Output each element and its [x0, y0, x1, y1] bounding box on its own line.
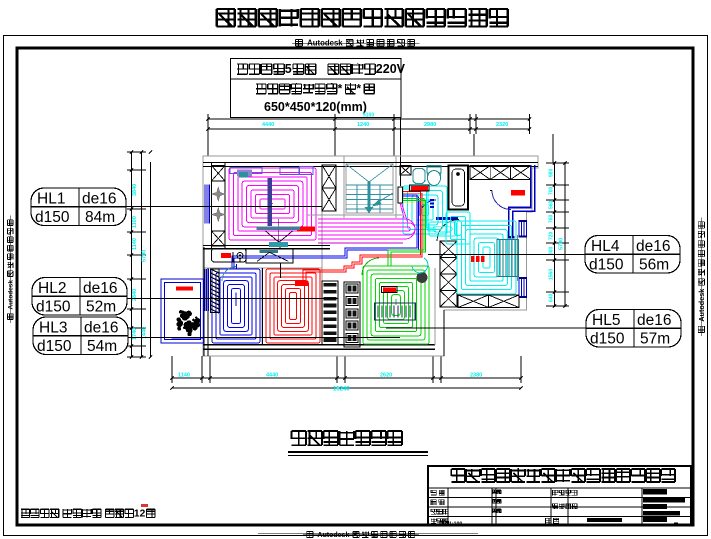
svg-text:2380: 2380 — [470, 373, 482, 379]
svg-text:de16: de16 — [637, 312, 671, 329]
svg-text:560: 560 — [549, 200, 555, 209]
svg-text:1560: 1560 — [549, 269, 555, 280]
svg-text:1240: 1240 — [357, 122, 369, 128]
svg-text:56m: 56m — [639, 257, 669, 274]
svg-text:5100: 5100 — [363, 113, 374, 119]
svg-text:980: 980 — [549, 168, 555, 177]
svg-text:700: 700 — [549, 186, 555, 195]
svg-text:HL5: HL5 — [592, 312, 620, 329]
svg-text:2980: 2980 — [424, 122, 436, 128]
svg-text:54m: 54m — [87, 338, 117, 355]
svg-text:5700: 5700 — [559, 238, 565, 250]
svg-text:d150: d150 — [35, 209, 70, 226]
svg-text:1140: 1140 — [132, 238, 138, 250]
svg-text:d150: d150 — [589, 257, 624, 274]
svg-text:4440: 4440 — [262, 122, 274, 128]
svg-text:d150: d150 — [36, 299, 71, 316]
svg-text:1740: 1740 — [132, 328, 138, 340]
svg-text:5700: 5700 — [142, 250, 148, 262]
svg-text:52m: 52m — [86, 299, 116, 316]
svg-text:800: 800 — [549, 246, 555, 255]
svg-text:de16: de16 — [636, 238, 670, 255]
svg-text:HL1: HL1 — [37, 191, 65, 208]
svg-text:12: 12 — [134, 508, 146, 519]
svg-text:HL2: HL2 — [38, 280, 66, 297]
svg-text:3840: 3840 — [132, 184, 138, 196]
svg-text:HL3: HL3 — [39, 320, 67, 337]
svg-text:de16: de16 — [82, 191, 116, 208]
svg-text:220V: 220V — [376, 62, 406, 76]
svg-text:15240: 15240 — [333, 386, 350, 392]
svg-text:d150: d150 — [590, 331, 625, 348]
svg-text:2620: 2620 — [380, 373, 392, 379]
svg-text:57m: 57m — [640, 331, 670, 348]
svg-text:*: * — [356, 81, 361, 95]
svg-text:2320: 2320 — [496, 122, 508, 128]
svg-text:760: 760 — [549, 214, 555, 223]
svg-text:2840: 2840 — [132, 289, 138, 301]
svg-text:5: 5 — [285, 62, 292, 76]
svg-text:de16: de16 — [84, 320, 118, 337]
svg-text:1100: 1100 — [132, 216, 138, 228]
svg-text:650*450*120(mm): 650*450*120(mm) — [264, 100, 367, 114]
svg-text:640: 640 — [549, 293, 555, 302]
svg-text:4440: 4440 — [266, 373, 278, 379]
svg-text:Autodesk: Autodesk — [8, 280, 15, 310]
svg-text:*: * — [338, 81, 343, 95]
svg-text:d150: d150 — [37, 338, 72, 355]
svg-text:720: 720 — [549, 231, 555, 240]
svg-text:1140: 1140 — [178, 373, 190, 379]
svg-text:Autodesk: Autodesk — [317, 532, 349, 539]
svg-text:HL4: HL4 — [591, 238, 620, 255]
svg-text:de16: de16 — [83, 280, 117, 297]
svg-text:84m: 84m — [85, 209, 115, 226]
